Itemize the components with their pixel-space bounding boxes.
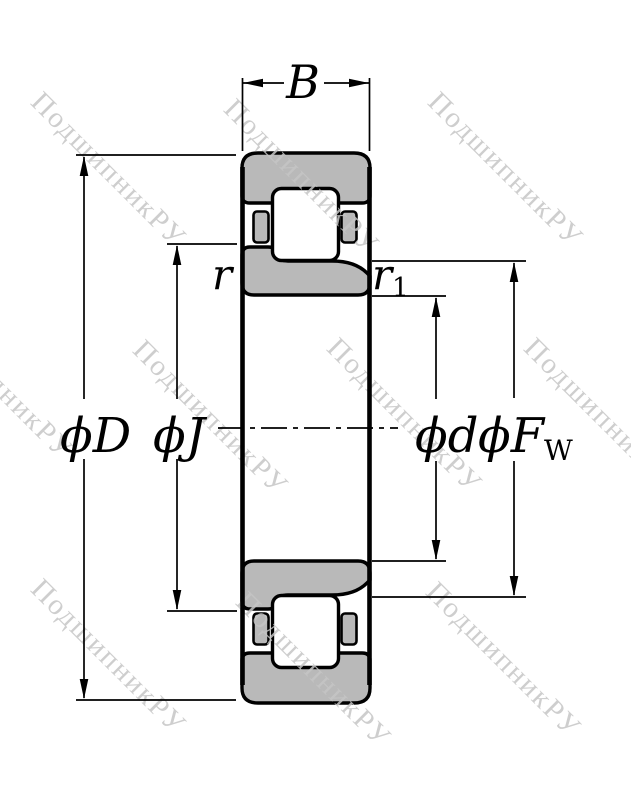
arrow-right-icon	[349, 79, 369, 87]
label-phi-J: ϕJ	[153, 408, 208, 464]
watermark-text: ПодшипникРУ	[421, 86, 589, 254]
bearing-diagram: ПодшипникРУПодшипникРУПодшипникРУПодшипн…	[0, 0, 631, 792]
watermark-text: ПодшипникРУ	[24, 86, 192, 254]
label-phi-D: ϕD	[60, 408, 131, 464]
label-r: r	[212, 250, 235, 299]
watermark-text: ПодшипникРУ	[126, 334, 294, 502]
label-r1: r1	[372, 250, 409, 303]
arrow-down-icon	[80, 679, 89, 699]
label-r1-sub: 1	[392, 273, 409, 303]
label-phi-F-main: ϕF	[478, 408, 546, 464]
arrow-left-icon	[243, 79, 263, 87]
label-phi-d: ϕd	[415, 408, 478, 464]
watermark-text: ПодшипникРУ	[419, 576, 587, 744]
label-phi-F-sub: W	[544, 434, 573, 467]
label-phi-Fw: ϕFW	[478, 408, 573, 467]
arrow-up-icon	[510, 262, 519, 282]
bearing-drawing-page: ПодшипникРУПодшипникРУПодшипникРУПодшипн…	[0, 0, 631, 792]
arrow-down-icon	[432, 540, 441, 560]
watermark-text: ПодшипникРУ	[24, 573, 192, 741]
label-B: B	[285, 55, 320, 109]
arrow-up-icon	[432, 297, 441, 317]
dimension-phi-d: ϕd	[372, 296, 478, 561]
arrow-down-icon	[173, 590, 182, 610]
arrow-down-icon	[510, 576, 519, 596]
